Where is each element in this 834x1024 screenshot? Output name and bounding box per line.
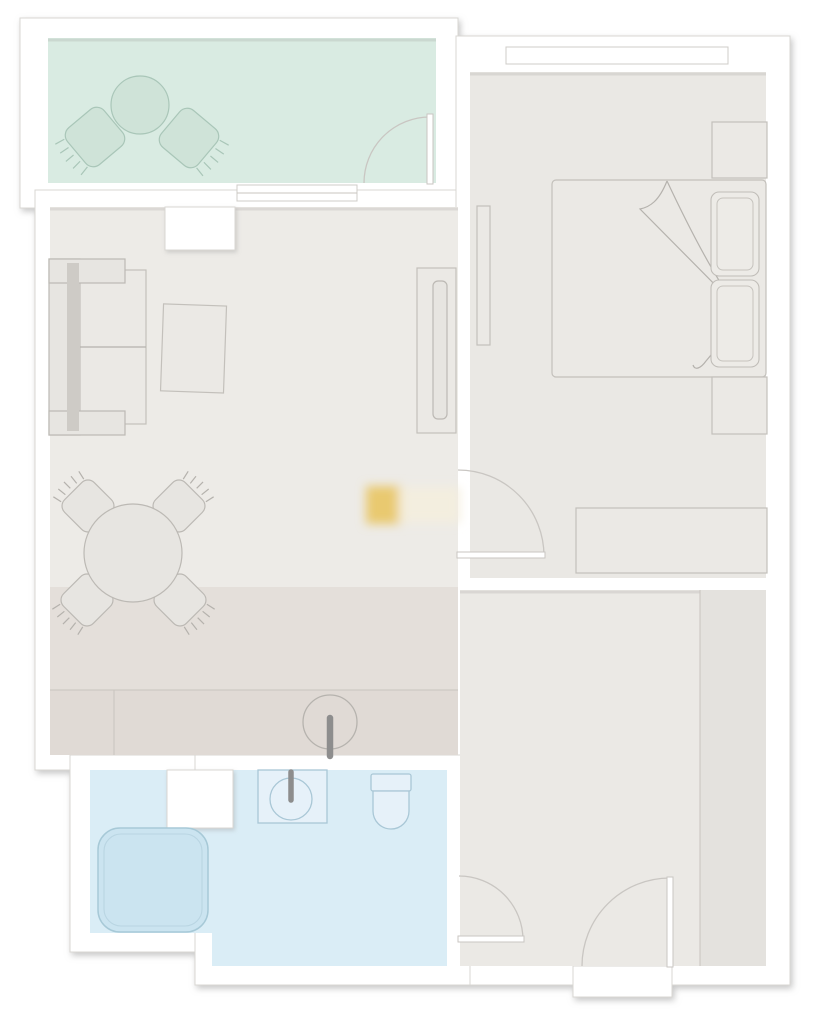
window-balcony (237, 185, 357, 201)
coffee-table-icon (161, 304, 227, 393)
floor-plan-drawing (0, 0, 834, 1024)
pillow (711, 280, 759, 367)
tv-cabinet-icon (417, 268, 456, 433)
pillow-icon (711, 280, 759, 367)
pillow (711, 192, 759, 276)
dresser-icon (576, 508, 767, 573)
closet-strip (700, 590, 766, 966)
sofa-icon (49, 259, 146, 435)
washbasin-icon (258, 770, 327, 823)
entrance-door-leaf (667, 877, 673, 967)
watermark-pale-part (398, 487, 460, 523)
balcony-door-leaf (427, 114, 433, 184)
bedroom-door-leaf (457, 552, 545, 558)
bathroom-door-leaf (458, 936, 524, 942)
watermark-gold-part (366, 486, 402, 524)
entrance-threshold (573, 966, 672, 997)
living-wall-notch (165, 207, 235, 250)
toilet-bowl (373, 791, 409, 829)
nightstand-icon (712, 377, 767, 434)
window-bedroom (506, 47, 728, 64)
coffee-table-top (161, 304, 227, 393)
sofa-backrest (67, 263, 79, 431)
toilet-icon (371, 774, 411, 829)
toilet-tank (371, 774, 411, 791)
sofa-armrest (49, 411, 125, 435)
shower-tray (98, 828, 208, 932)
radiator-icon (477, 206, 490, 345)
kitchen-counter (50, 690, 458, 755)
pillow-icon (711, 192, 759, 276)
shower-icon (98, 828, 208, 932)
bathroom-wall-notch (167, 770, 233, 828)
tv-icon (433, 281, 447, 419)
blurred-watermark (366, 486, 460, 524)
dining-table-icon (84, 504, 182, 602)
sofa-armrest (49, 259, 125, 283)
nightstand-icon (712, 122, 767, 178)
floor-plan-canvas (0, 0, 834, 1024)
balcony-floor (48, 38, 436, 183)
balcony-table-icon (111, 76, 169, 134)
